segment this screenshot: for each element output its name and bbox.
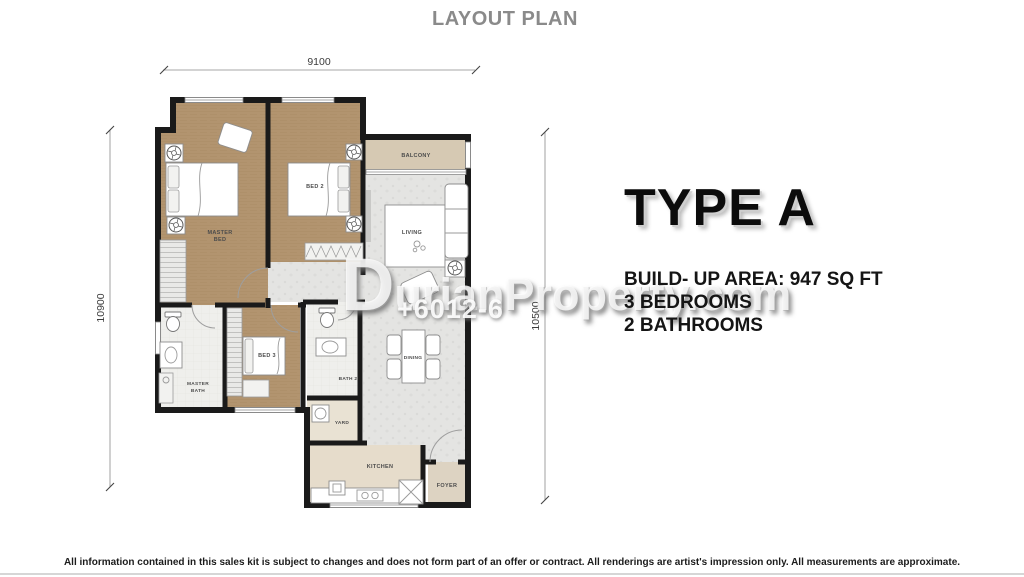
unit-type-heading: TYPE A <box>624 178 816 238</box>
fan-icon <box>347 145 361 159</box>
label-master-bed: MASTER <box>207 230 232 236</box>
cabinet-icon <box>329 481 345 495</box>
dim-left: 10900 <box>95 293 107 322</box>
label-yard: YARD <box>335 420 350 426</box>
desk-icon <box>243 380 269 397</box>
page-title: LAYOUT PLAN <box>0 8 1010 31</box>
label-bed2: BED 2 <box>306 184 324 190</box>
chair-icon <box>426 335 440 355</box>
footer-disclaimer: All information contained in this sales … <box>0 557 1024 568</box>
chair-icon <box>387 335 401 355</box>
dim-top: 9100 <box>307 56 331 68</box>
svg-text:BED: BED <box>214 237 227 243</box>
washer-icon <box>312 405 329 422</box>
fan-icon <box>167 146 181 160</box>
toilet-icon <box>165 312 181 332</box>
watermark-site-initial: D <box>341 248 394 322</box>
label-living: LIVING <box>402 230 422 236</box>
label-kitchen: KITCHEN <box>367 464 394 470</box>
unit-bathrooms: 2 BATHROOMS <box>624 314 883 337</box>
label-dining: DINING <box>404 355 423 361</box>
label-foyer: FOYER <box>437 483 457 489</box>
label-master-bath: MASTER <box>187 381 209 387</box>
chair-icon <box>426 359 440 379</box>
chair-icon <box>387 359 401 379</box>
label-bed3: BED 3 <box>258 353 276 359</box>
fan-icon <box>347 217 361 231</box>
tv-console-icon <box>366 190 371 242</box>
label-bath2: BATH 2 <box>339 376 358 382</box>
fan-icon <box>169 218 183 232</box>
footer-divider <box>0 573 1024 575</box>
watermark-phone: +6012-6 <box>397 294 504 325</box>
unit-bedrooms: 3 BEDROOMS <box>624 291 883 314</box>
toilet-icon <box>319 308 335 328</box>
wardrobe-icon <box>160 240 186 302</box>
vanity-icon <box>160 342 182 368</box>
label-balcony: BALCONY <box>401 153 430 159</box>
sofa-icon <box>445 184 468 258</box>
unit-area: BUILD- UP AREA: 947 SQ FT <box>624 268 883 291</box>
wardrobe-icon <box>227 308 242 396</box>
unit-info: BUILD- UP AREA: 947 SQ FT 3 BEDROOMS 2 B… <box>624 268 883 337</box>
shower-icon <box>159 373 173 403</box>
svg-text:BATH: BATH <box>191 388 205 394</box>
